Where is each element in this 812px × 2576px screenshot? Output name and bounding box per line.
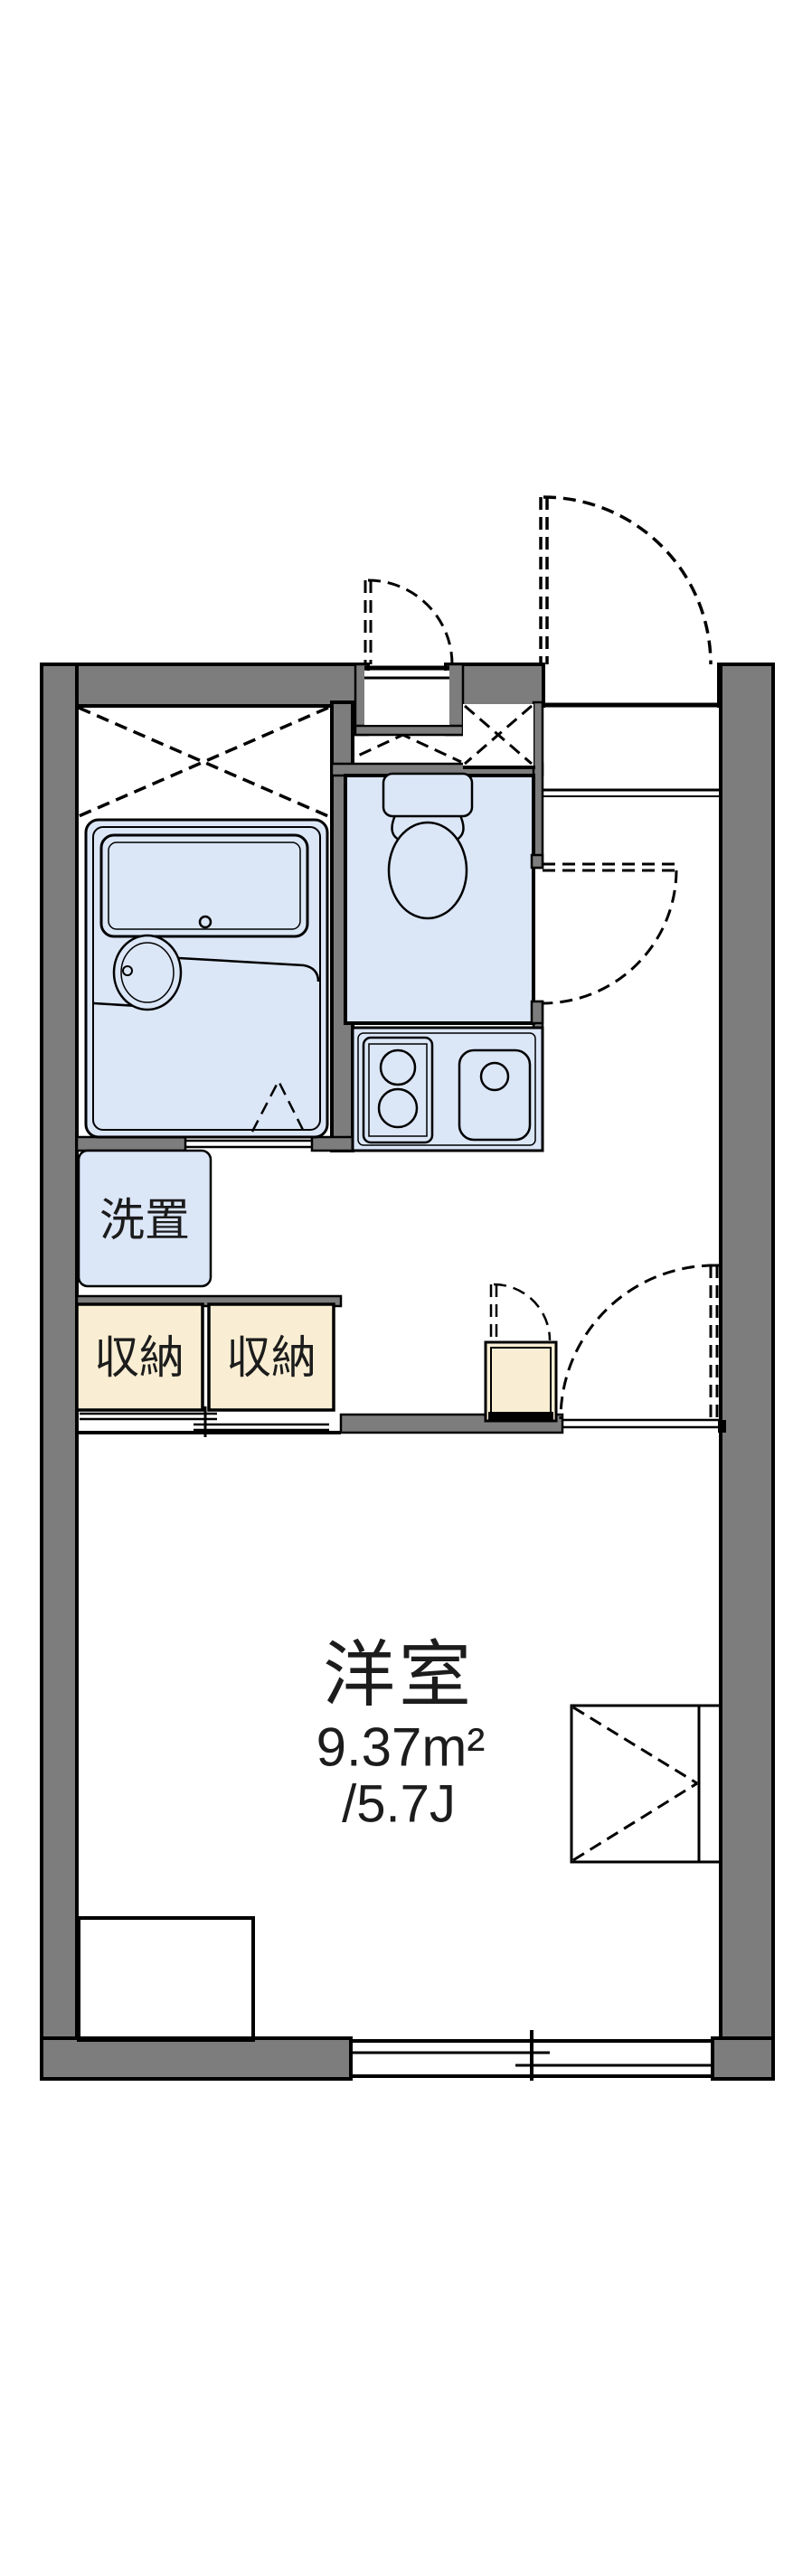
washer-space: 洗置 <box>79 1151 211 1286</box>
toilet-door <box>532 855 676 1023</box>
entry-storage-x-box <box>463 704 535 767</box>
kitchen <box>353 1028 543 1151</box>
entrance-door <box>541 497 721 705</box>
bathroom-x-mark <box>79 708 328 816</box>
wall-left <box>42 664 77 2079</box>
cupboard-base <box>488 1412 553 1421</box>
cupboard <box>486 1284 556 1421</box>
entry-notch-door <box>364 580 452 725</box>
toilet-door-jamb-bottom <box>532 1001 543 1023</box>
bathroom <box>86 820 327 1147</box>
toilet-door-jamb-top <box>532 855 543 868</box>
bottom-window <box>351 2030 714 2081</box>
bed-rectangle <box>79 1918 253 2040</box>
toilet-tank <box>383 774 472 816</box>
entrance-step <box>543 790 721 796</box>
main-room-name: 洋室 <box>323 1635 475 1716</box>
cupboard-door-arc <box>494 1284 550 1340</box>
room-door-swing-arc <box>561 1265 714 1419</box>
main-room-area: 9.37m² <box>316 1717 486 1778</box>
floorplan-drawing: 洗置 収納 収納 <box>0 0 812 2576</box>
room-door-jamb <box>718 1420 726 1433</box>
wall-bottom-left <box>42 2038 351 2079</box>
washer-space-label: 洗置 <box>99 1195 190 1246</box>
main-room-labels: 洋室 9.37m² /5.7J <box>316 1635 486 1834</box>
bay-unit-box <box>571 1706 699 1862</box>
toilet-room <box>345 774 533 1023</box>
wall-bath-bottom-right <box>312 1137 353 1151</box>
wall-bath-bottom-left <box>77 1137 185 1151</box>
toilet-door-swing-arc <box>543 870 676 1003</box>
wall-right <box>721 664 773 2079</box>
wall-bottom-right <box>713 2038 773 2079</box>
entrance-door-swing-arc <box>543 497 711 664</box>
entry-notch-sill <box>355 726 463 735</box>
wall-top-left <box>42 664 368 706</box>
bay-unit-dashed-v <box>571 1706 721 1862</box>
storage-closets: 収納 収納 <box>77 1304 334 1437</box>
main-room-tatami: /5.7J <box>342 1775 456 1834</box>
main-room-door <box>561 1265 726 1433</box>
cupboard-box <box>486 1342 556 1421</box>
notch-door-swing-arc <box>368 580 452 664</box>
storage-label-1: 収納 <box>94 1332 184 1383</box>
kitchen-counter <box>353 1028 543 1151</box>
toilet-bowl <box>389 823 467 918</box>
floorplan-page: 洗置 収納 収納 <box>0 0 812 2576</box>
storage-label-2: 収納 <box>226 1332 316 1383</box>
